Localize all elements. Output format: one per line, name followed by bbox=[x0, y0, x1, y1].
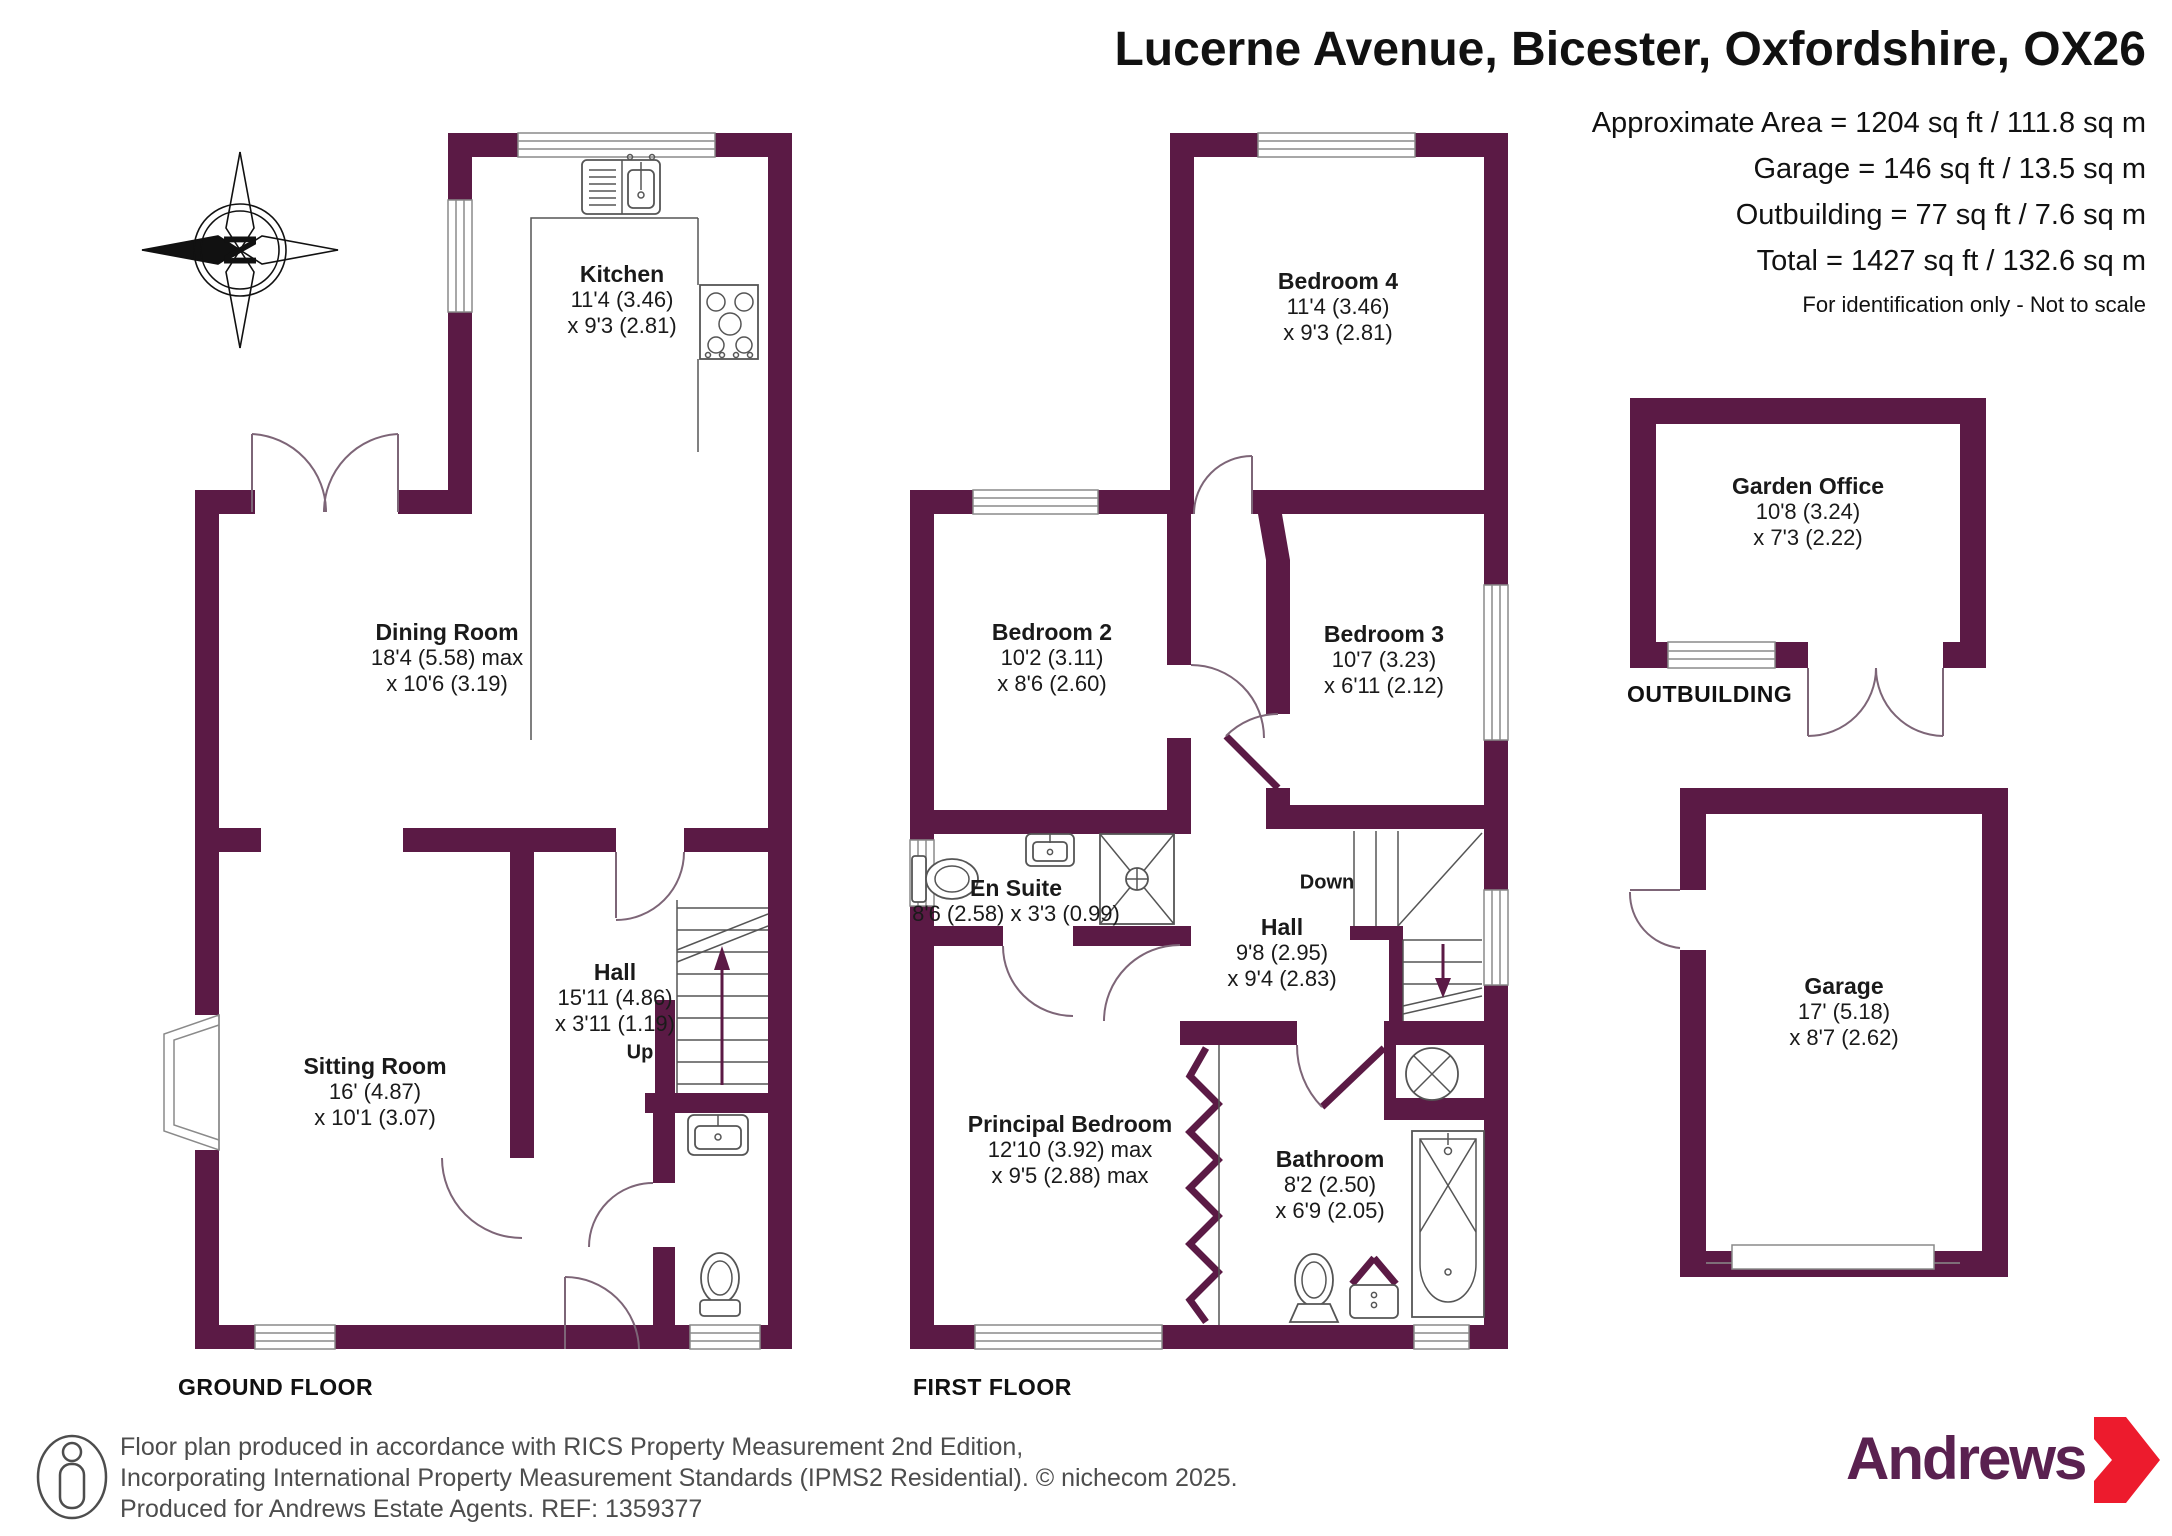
area-line: Garage = 146 sq ft / 13.5 sq m bbox=[1592, 146, 2146, 192]
outbuilding-double-doors bbox=[1808, 668, 1943, 736]
andrews-arrow-icon bbox=[2094, 1417, 2160, 1503]
area-note: For identification only - Not to scale bbox=[1592, 292, 2146, 318]
ground-floor-windows bbox=[255, 133, 760, 1349]
first-floor-doors bbox=[1003, 456, 1384, 1107]
andrews-logo: Andrews bbox=[1846, 1424, 2085, 1493]
page-title: Lucerne Avenue, Bicester, Oxfordshire, O… bbox=[1114, 22, 2146, 77]
room-label-en-suite: En Suite 8'6 (2.58) x 3'3 (0.99) bbox=[912, 875, 1120, 927]
ground-floor-doors bbox=[252, 434, 684, 1349]
room-label-dining-room: Dining Room 18'4 (5.58) max x 10'6 (3.19… bbox=[371, 619, 523, 697]
ensuite-basin bbox=[1026, 834, 1074, 866]
stairs-up bbox=[677, 900, 768, 1093]
ground-floor-plan bbox=[164, 133, 792, 1349]
outbuilding-window bbox=[1668, 642, 1775, 668]
kitchen-hob bbox=[700, 285, 758, 359]
room-label-garage: Garage 17' (5.18) x 8'7 (2.62) bbox=[1789, 973, 1898, 1051]
footer-disclaimer: Floor plan produced in accordance with R… bbox=[120, 1432, 1238, 1525]
room-label-kitchen: Kitchen 11'4 (3.46) x 9'3 (2.81) bbox=[567, 261, 676, 339]
room-label-hall-ground: Hall 15'11 (4.86) x 3'11 (1.19) bbox=[555, 959, 675, 1037]
outbuilding-caption: OUTBUILDING bbox=[1627, 681, 1792, 708]
bathroom-basin bbox=[1350, 1258, 1398, 1318]
kitchen-sink bbox=[582, 155, 660, 215]
footer-line: Incorporating International Property Mea… bbox=[120, 1463, 1238, 1494]
stairs-up-label: Up bbox=[627, 1042, 654, 1065]
room-label-hall-first: Hall 9'8 (2.95) x 9'4 (2.83) bbox=[1227, 914, 1336, 992]
footer-line: Floor plan produced in accordance with R… bbox=[120, 1432, 1238, 1463]
room-label-bedroom3: Bedroom 3 10'7 (3.23) x 6'11 (2.12) bbox=[1324, 621, 1444, 699]
wardrobe-doors bbox=[1190, 1045, 1219, 1325]
room-label-bedroom4: Bedroom 4 11'4 (3.46) x 9'3 (2.81) bbox=[1278, 268, 1398, 346]
ground-floor-caption: GROUND FLOOR bbox=[178, 1374, 373, 1401]
stairs-down-label: Down bbox=[1300, 872, 1354, 895]
bay-window bbox=[164, 1015, 219, 1150]
area-summary: Approximate Area = 1204 sq ft / 111.8 sq… bbox=[1592, 100, 2146, 318]
area-line: Outbuilding = 77 sq ft / 7.6 sq m bbox=[1592, 192, 2146, 238]
room-label-bathroom: Bathroom 8'2 (2.50) x 6'9 (2.05) bbox=[1275, 1146, 1384, 1224]
first-floor-caption: FIRST FLOOR bbox=[913, 1374, 1072, 1401]
garage-side-door bbox=[1630, 890, 1680, 948]
area-line: Approximate Area = 1204 sq ft / 111.8 sq… bbox=[1592, 100, 2146, 146]
room-label-bedroom2: Bedroom 2 10'2 (3.11) x 8'6 (2.60) bbox=[992, 619, 1112, 697]
compass-north-label: N bbox=[214, 233, 266, 266]
footer-line: Produced for Andrews Estate Agents. REF:… bbox=[120, 1494, 1238, 1525]
room-label-sitting-room: Sitting Room 16' (4.87) x 10'1 (3.07) bbox=[303, 1053, 446, 1131]
wc-basin bbox=[688, 1115, 748, 1155]
area-line: Total = 1427 sq ft / 132.6 sq m bbox=[1592, 238, 2146, 284]
garage-door bbox=[1706, 1245, 1960, 1269]
room-label-garden-office: Garden Office 10'8 (3.24) x 7'3 (2.22) bbox=[1732, 473, 1884, 551]
bathtub bbox=[1412, 1131, 1484, 1317]
water-tank bbox=[1406, 1048, 1458, 1100]
bathroom-toilet bbox=[1290, 1254, 1338, 1322]
room-label-principal-bedroom: Principal Bedroom 12'10 (3.92) max x 9'5… bbox=[968, 1111, 1172, 1189]
compass-icon: N bbox=[142, 152, 338, 348]
person-icon bbox=[38, 1436, 106, 1518]
floorplan-page: N bbox=[0, 0, 2172, 1536]
wc-toilet bbox=[700, 1253, 740, 1316]
